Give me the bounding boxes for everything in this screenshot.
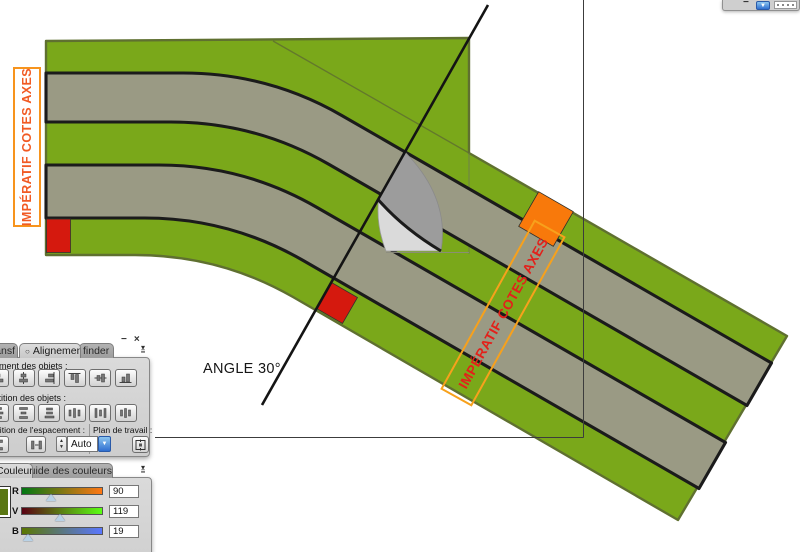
tab-pathfinder[interactable]: finder — [79, 343, 114, 358]
tab-transf-label: Transf — [0, 345, 15, 357]
channel-b-slider-thumb[interactable] — [23, 534, 33, 541]
alignment-panel: −× Transf ○ Alignement × finder ▾≡ Align… — [0, 336, 150, 457]
distribute-horizontal-center-button[interactable] — [89, 404, 111, 422]
tab-guide-couleurs[interactable]: Guide des couleurs — [26, 463, 113, 478]
fill-color-swatch[interactable] — [0, 487, 10, 517]
tab-couleur-label: Couleur — [0, 465, 33, 477]
channel-b-slider[interactable] — [21, 527, 103, 535]
distribute-spacing-label: Répartition de l'espacement : — [0, 425, 85, 435]
spacing-dropdown-button[interactable]: ▼ — [98, 436, 111, 452]
tab-alignement-label: Alignement — [33, 345, 81, 357]
channel-v-slider-thumb[interactable] — [55, 514, 65, 521]
tab-alignement[interactable]: ○ Alignement × — [19, 343, 81, 358]
tab-guide-couleurs-label: Guide des couleurs — [26, 465, 112, 477]
red-marker-left[interactable] — [47, 219, 71, 253]
tab-active-marker: ○ — [25, 347, 30, 356]
tab-pathfinder-label: finder — [83, 345, 109, 357]
spacing-stepper[interactable]: ▲▼ — [56, 436, 67, 452]
distribute-vertical-bottom-button[interactable] — [38, 404, 60, 422]
align-vertical-top-button[interactable] — [64, 369, 86, 387]
distribute-vertical-center-button[interactable] — [13, 404, 35, 422]
top-right-panel-fragment: − ▼ — [722, 0, 800, 11]
distribute-vertical-top-button[interactable] — [0, 404, 9, 422]
angle-annotation[interactable]: ANGLE 30° — [203, 361, 281, 377]
channel-r-slider-thumb[interactable] — [46, 494, 56, 501]
channel-v-label: V — [12, 506, 18, 517]
artboard-label: Plan de travail : — [93, 425, 152, 435]
distribute-horizontal-right-button[interactable] — [115, 404, 137, 422]
distribute-spacing-vertical-button[interactable] — [0, 436, 9, 453]
panel-minimize-button[interactable]: − — [121, 334, 134, 345]
distribute-objects-label: Répartition des objets : — [0, 393, 66, 403]
partial-value-box — [774, 1, 797, 9]
channel-r-value-field[interactable]: 90 — [109, 485, 139, 498]
align-horizontal-left-button[interactable] — [0, 369, 9, 387]
align-vertical-middle-button[interactable] — [89, 369, 111, 387]
align-horizontal-center-button[interactable] — [13, 369, 35, 387]
distribute-horizontal-left-button[interactable] — [64, 404, 86, 422]
panel-menu-icon[interactable]: ▾≡ — [136, 346, 150, 354]
dropdown-arrow-icon: ▼ — [760, 3, 766, 9]
channel-b-label: B — [12, 526, 19, 537]
color-panel-body: R 90 V 119 B 19 — [0, 477, 152, 552]
channel-v-value-field[interactable]: 119 — [109, 505, 139, 518]
artboard-align-button[interactable] — [132, 436, 149, 453]
channel-r-label: R — [12, 486, 19, 497]
dropdown-button[interactable]: ▼ — [756, 1, 770, 10]
minimize-icon[interactable]: − — [743, 0, 749, 8]
channel-r-slider[interactable] — [21, 487, 103, 495]
illustrator-workspace: IMPÉRATIF COTES AXES IMPÉRATIF COTES AXE… — [0, 0, 800, 552]
alignment-panel-body: Alignement des objets : Répartition des … — [0, 357, 150, 457]
spacing-value-field[interactable]: Auto — [67, 436, 98, 452]
distribute-spacing-horizontal-button[interactable] — [26, 436, 46, 453]
color-panel: Couleur × Guide des couleurs ▾≡ R 90 V 1… — [0, 461, 152, 552]
align-horizontal-right-button[interactable] — [38, 369, 60, 387]
tab-couleur[interactable]: Couleur × — [0, 463, 33, 478]
axis-note-left[interactable]: IMPÉRATIF COTES AXES — [13, 67, 41, 227]
align-vertical-bottom-button[interactable] — [115, 369, 137, 387]
tab-transf[interactable]: Transf — [0, 343, 18, 358]
panel-menu-icon[interactable]: ▾≡ — [136, 466, 150, 474]
channel-b-value-field[interactable]: 19 — [109, 525, 139, 538]
